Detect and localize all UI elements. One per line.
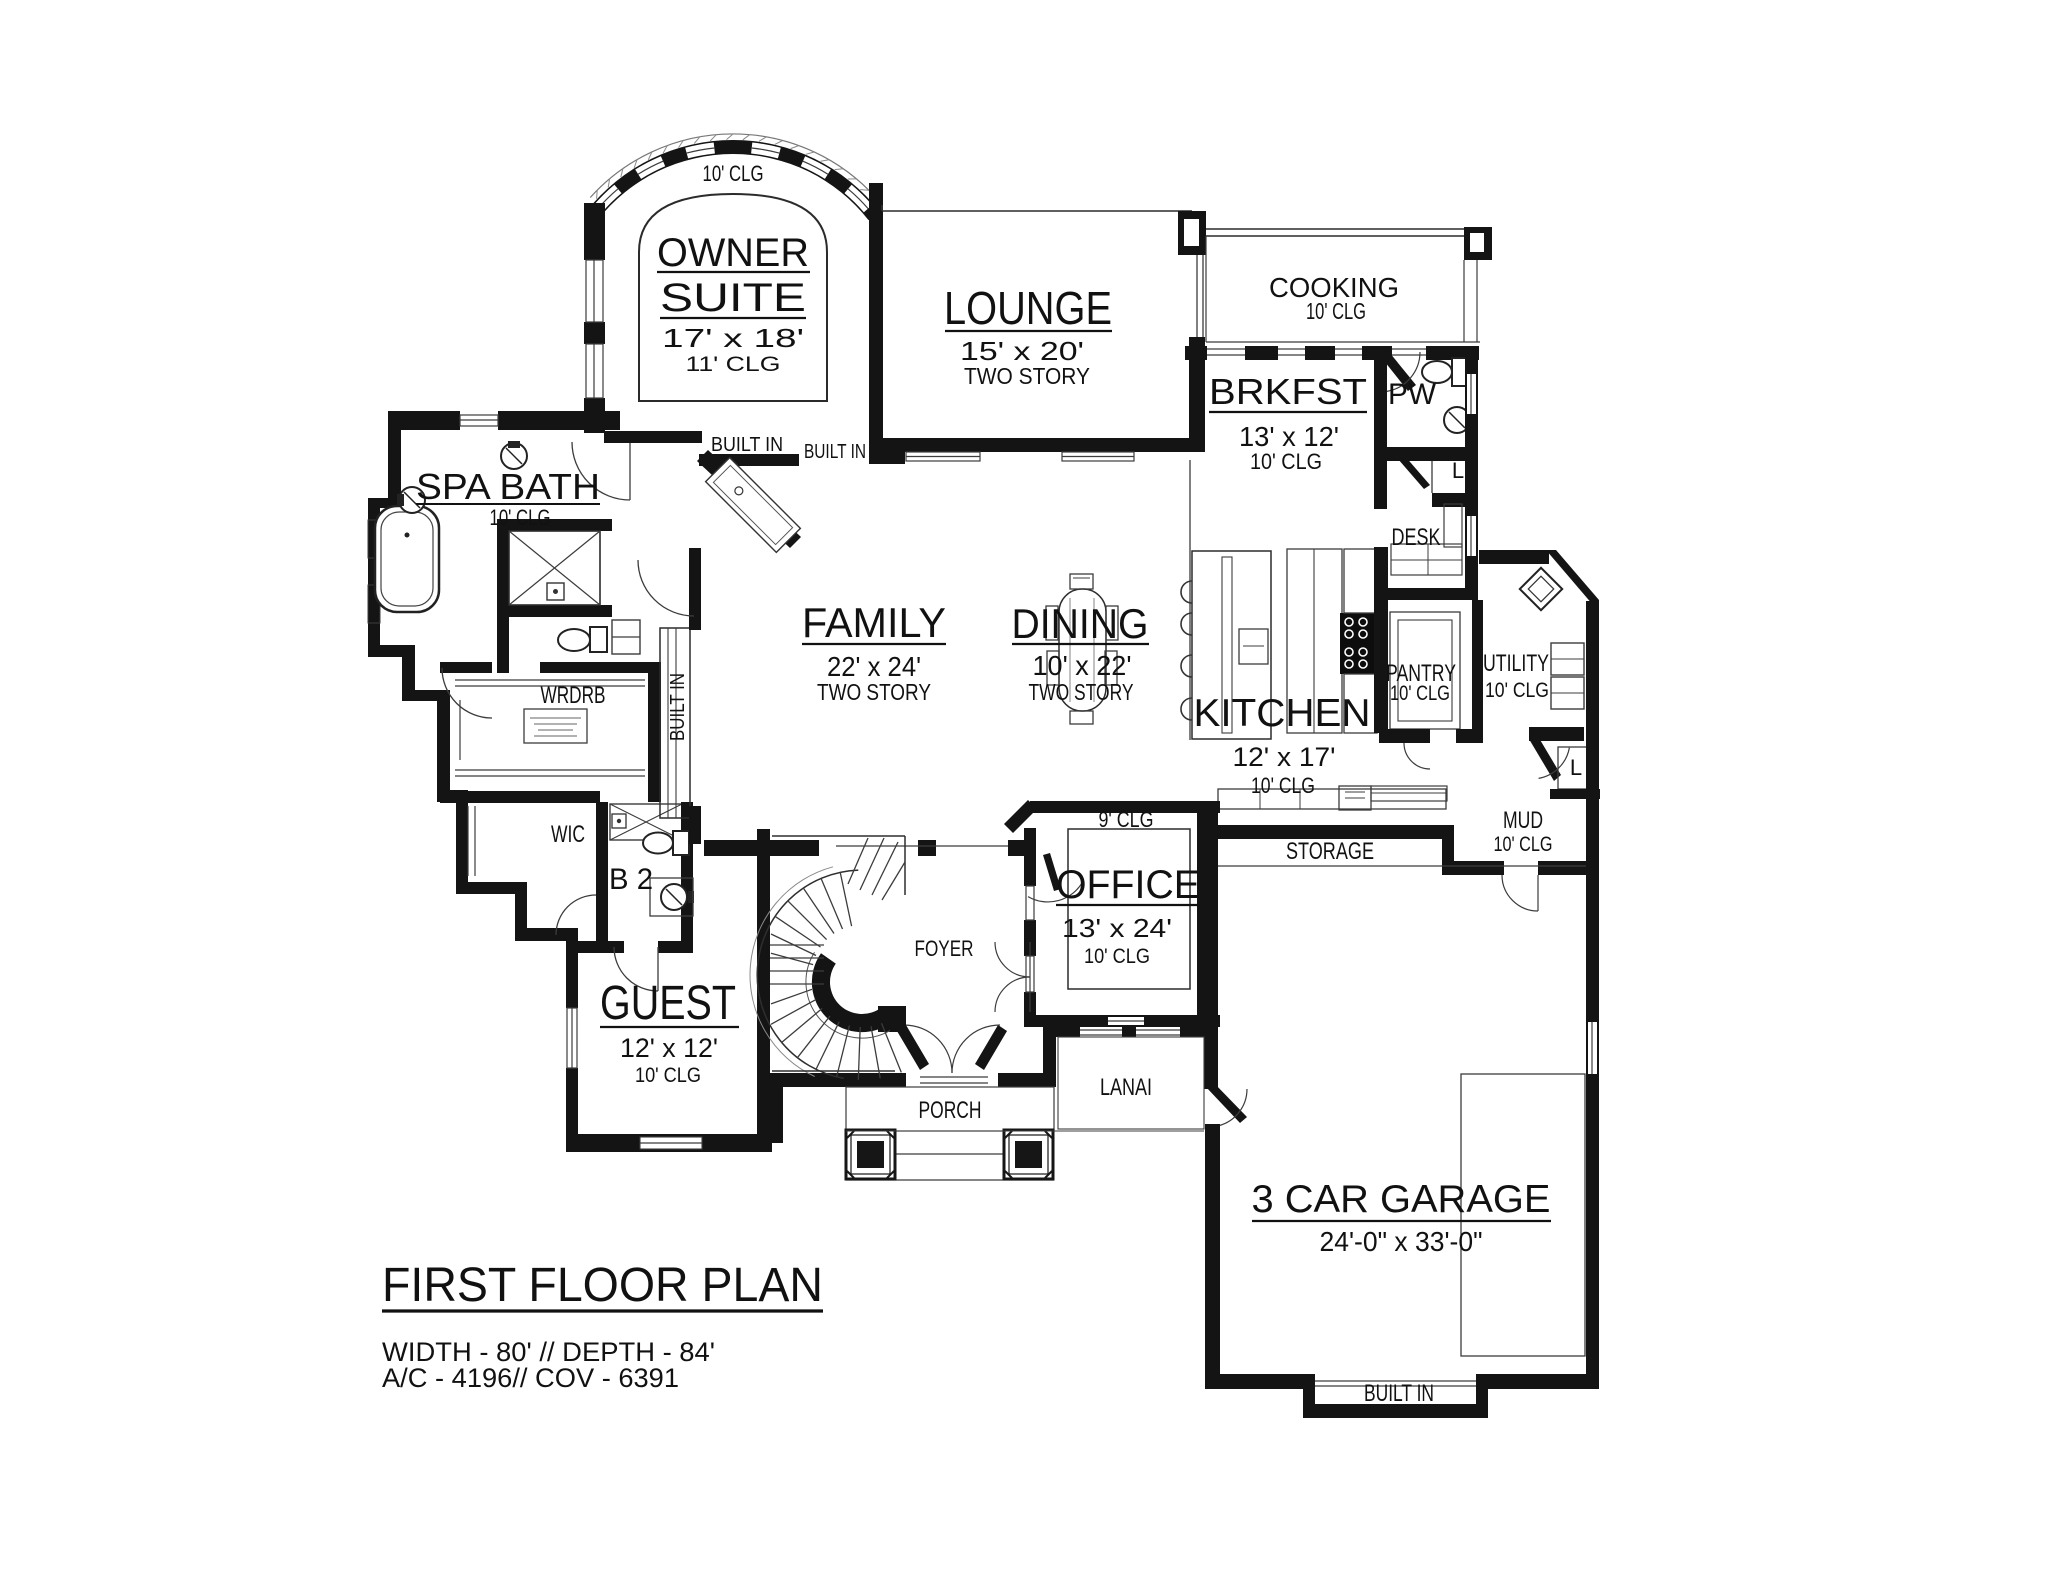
svg-text:PW: PW [1388,378,1437,411]
svg-text:WRDRB: WRDRB [541,682,606,709]
svg-text:10' CLG: 10' CLG [1485,679,1549,702]
svg-text:13' x 12': 13' x 12' [1239,421,1339,452]
svg-text:FAMILY: FAMILY [802,599,946,646]
svg-text:STORAGE: STORAGE [1286,838,1374,865]
svg-text:A/C - 4196// COV - 6391: A/C - 4196// COV - 6391 [382,1363,679,1393]
svg-text:TWO STORY: TWO STORY [964,363,1090,389]
svg-text:10' CLG: 10' CLG [1084,945,1150,968]
svg-text:MUD: MUD [1503,807,1543,834]
svg-text:KITCHEN: KITCHEN [1194,692,1371,735]
svg-text:24'-0" x 33'-0": 24'-0" x 33'-0" [1320,1226,1483,1257]
svg-text:22' x 24': 22' x 24' [827,651,921,682]
svg-text:PORCH: PORCH [919,1097,982,1124]
svg-text:10' CLG: 10' CLG [703,161,764,186]
svg-text:10' CLG: 10' CLG [635,1064,701,1087]
svg-text:10' CLG: 10' CLG [1494,833,1553,856]
svg-text:10' CLG: 10' CLG [490,505,551,530]
svg-text:10' CLG: 10' CLG [1250,449,1322,474]
svg-text:3 CAR GARAGE: 3 CAR GARAGE [1252,1178,1551,1221]
svg-text:DINING: DINING [1012,600,1149,647]
svg-text:BUILT IN: BUILT IN [667,673,689,741]
svg-text:DESK: DESK [1392,524,1441,551]
svg-text:10' CLG: 10' CLG [1306,298,1366,324]
svg-text:OFFICE: OFFICE [1056,863,1200,907]
svg-text:TWO STORY: TWO STORY [1029,679,1134,705]
svg-text:BRKFST: BRKFST [1209,371,1367,412]
svg-text:FIRST FLOOR PLAN: FIRST FLOOR PLAN [382,1259,823,1312]
svg-text:GUEST: GUEST [600,977,736,1030]
svg-text:12' x 12': 12' x 12' [620,1033,718,1063]
svg-text:BUILT IN: BUILT IN [804,441,866,463]
svg-text:L: L [1452,458,1464,483]
svg-text:BUILT IN: BUILT IN [1364,1380,1434,1407]
svg-text:BUILT IN: BUILT IN [711,434,783,456]
svg-text:TWO STORY: TWO STORY [817,679,931,705]
svg-text:10' CLG: 10' CLG [1390,682,1450,705]
svg-text:LANAI: LANAI [1100,1074,1152,1101]
svg-text:13' x 24': 13' x 24' [1062,913,1172,943]
svg-text:SPA BATH: SPA BATH [416,466,600,507]
svg-text:12' x 17': 12' x 17' [1233,742,1336,772]
svg-text:OWNER: OWNER [657,231,809,275]
svg-text:17' x 18': 17' x 18' [662,323,804,353]
svg-text:11' CLG: 11' CLG [686,353,781,376]
svg-text:10' CLG: 10' CLG [1251,773,1315,798]
svg-text:UTILITY: UTILITY [1483,650,1549,677]
svg-text:15' x 20': 15' x 20' [960,336,1084,366]
svg-text:10' x 22': 10' x 22' [1033,650,1132,681]
svg-text:FOYER: FOYER [915,936,974,961]
svg-text:L: L [1570,755,1582,780]
svg-text:SUITE: SUITE [660,276,806,320]
svg-text:9' CLG: 9' CLG [1099,807,1154,832]
svg-text:WIC: WIC [551,821,585,848]
svg-text:B 2: B 2 [609,863,653,896]
svg-text:LOUNGE: LOUNGE [944,282,1112,334]
